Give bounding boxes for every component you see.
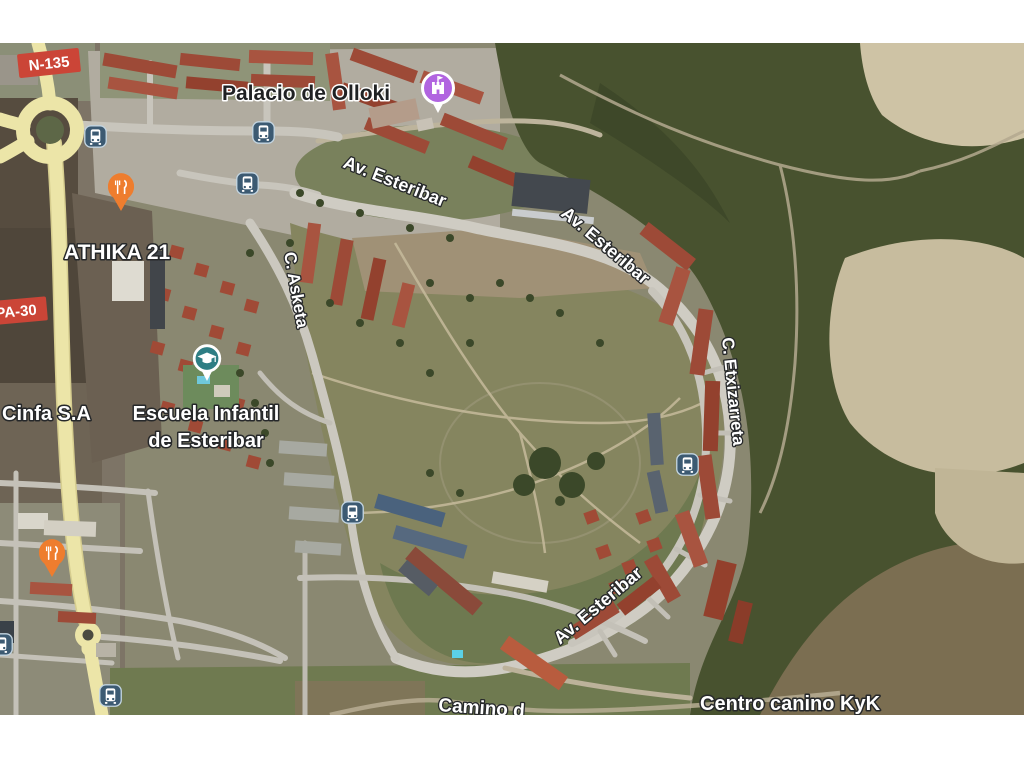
bus-stop-icon[interactable] — [237, 173, 258, 194]
bus-stop-icon[interactable] — [253, 122, 274, 143]
screenshot-root: N-135 PA-30 Palacio de Olloki Av. Esteri… — [0, 0, 1024, 768]
bus-stop-icon[interactable] — [342, 502, 363, 523]
bus-stop-icon[interactable] — [0, 634, 12, 655]
bus-stop-icon[interactable] — [100, 685, 121, 706]
poi-label-centro-canino[interactable]: Centro canino KyK — [700, 693, 881, 715]
map-viewport[interactable]: N-135 PA-30 Palacio de Olloki Av. Esteri… — [0, 43, 1024, 715]
poi-label-palacio-de-olloki[interactable]: Palacio de Olloki — [222, 82, 390, 105]
poi-label-cinfa[interactable]: Cinfa S.A — [2, 403, 91, 425]
poi-label-escuela-line1[interactable]: Escuela Infantil — [133, 403, 280, 425]
bus-stop-icon[interactable] — [85, 126, 106, 147]
bus-stop-icon[interactable] — [677, 454, 698, 475]
map-canvas[interactable]: N-135 PA-30 Palacio de Olloki Av. Esteri… — [0, 43, 1024, 715]
poi-label-escuela-line2[interactable]: de Esteribar — [148, 430, 264, 452]
poi-label-athika-21[interactable]: ATHIKA 21 — [64, 241, 171, 264]
